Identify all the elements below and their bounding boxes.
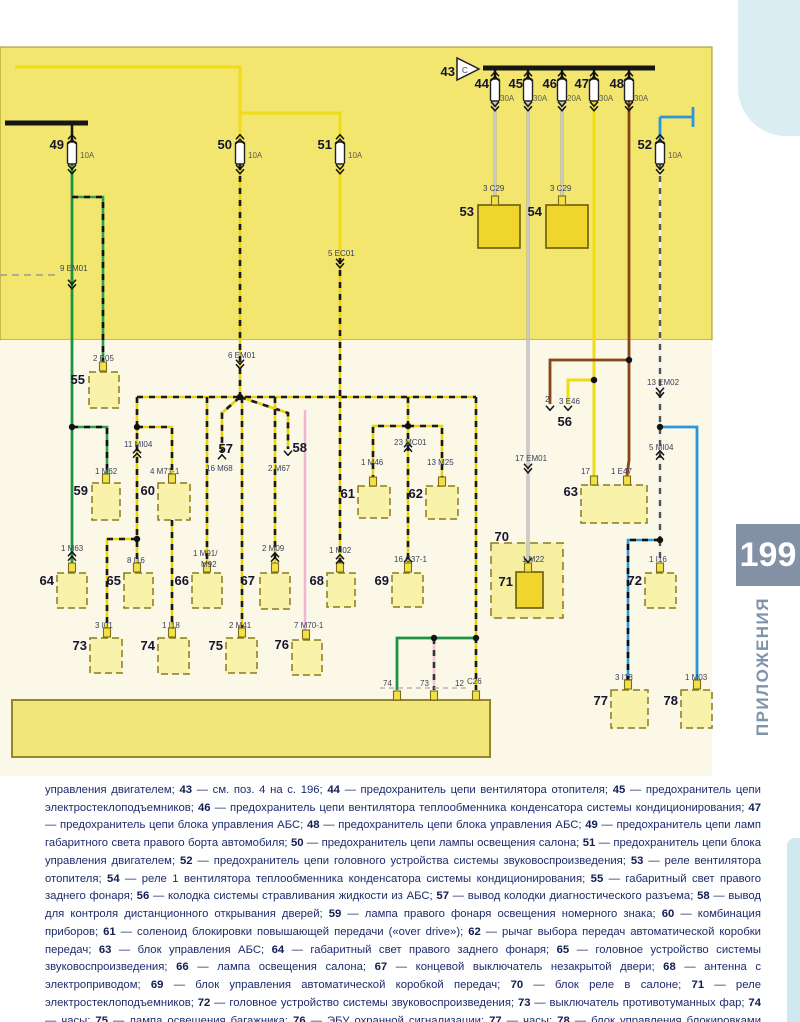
legend-item-number: 70 — [511, 979, 524, 991]
junction-node — [657, 424, 663, 430]
connector-label: 2 M09 — [262, 544, 285, 553]
part-number-label: 59 — [74, 483, 88, 498]
connector-label: 13 EM02 — [647, 378, 680, 387]
connector-label: 1 M03 — [685, 673, 708, 682]
legend-item-number: 78 — [557, 1015, 570, 1022]
fuse-symbol — [558, 79, 567, 101]
part-number-label: 43 — [441, 64, 455, 79]
connector-label: 17 — [581, 467, 590, 476]
component-box-54 — [546, 205, 588, 248]
legend-item-number: 76 — [293, 1015, 306, 1022]
fuse-rating-label: 10A — [668, 151, 683, 160]
legend-item-number: 63 — [99, 944, 112, 956]
connector-label: 2 — [545, 395, 550, 404]
connector-pin — [394, 691, 401, 700]
junction-node — [237, 394, 243, 400]
connector-pin — [431, 691, 438, 700]
component-box-77 — [611, 690, 648, 728]
section-title-vertical: ПРИЛОЖЕНИЯ — [753, 597, 773, 736]
connector-label: 2 M67 — [268, 464, 291, 473]
connector-label: 3 I01 — [95, 621, 113, 630]
junction-node — [69, 424, 75, 430]
legend-item-number: 46 — [198, 802, 211, 814]
legend-item-number: 54 — [107, 873, 120, 885]
legend-item-number: 62 — [468, 926, 481, 938]
connector-label: 5 EC01 — [328, 249, 355, 258]
fuse-symbol — [336, 142, 345, 164]
connector-label: 1 I16 — [649, 555, 667, 564]
component-box-69 — [392, 573, 423, 607]
legend-item-number: 60 — [662, 908, 675, 920]
legend-item-number: 61 — [103, 926, 116, 938]
part-number-label: 53 — [460, 204, 474, 219]
connector-label: 9 EM01 — [60, 264, 88, 273]
component-box-60 — [158, 483, 190, 520]
component-box-74 — [158, 638, 189, 674]
fuse-symbol — [656, 142, 665, 164]
connector-pin — [69, 563, 76, 572]
connector-pin — [492, 196, 499, 205]
connector-label: 13 M25 — [427, 458, 454, 467]
fuse-symbol — [68, 142, 77, 164]
fuse-symbol — [625, 79, 634, 101]
junction-node — [591, 377, 597, 383]
component-box-78 — [681, 690, 712, 728]
legend-item-number: 56 — [137, 890, 150, 902]
part-number-label: 65 — [107, 573, 121, 588]
component-box-53 — [478, 205, 520, 248]
fuse-rating-label: 20A — [567, 94, 582, 103]
component-box-76 — [292, 640, 322, 675]
part-number-label: 73 — [73, 638, 87, 653]
connector-pin — [100, 362, 107, 371]
connector-label: 3 E46 — [559, 397, 580, 406]
part-number-label: 71 — [499, 574, 513, 589]
connector-pin — [559, 196, 566, 205]
fuse-rating-label: 10A — [248, 151, 263, 160]
connector-label: 16 C37-1 — [394, 555, 427, 564]
junction-node — [431, 635, 437, 641]
connector-label: 5 MI04 — [649, 443, 674, 452]
part-number-label: 62 — [409, 486, 423, 501]
legend-item-number: 45 — [613, 784, 626, 796]
part-number-label: 69 — [375, 573, 389, 588]
component-box-63 — [581, 485, 647, 523]
power-source-letter: C — [462, 66, 468, 75]
legend-item-number: 73 — [518, 997, 531, 1009]
part-number-label: 45 — [509, 76, 523, 91]
connector-label: 1 I18 — [162, 621, 180, 630]
part-number-label: 67 — [241, 573, 255, 588]
fuse-rating-label: 10A — [80, 151, 95, 160]
legend-item-number: 77 — [489, 1015, 502, 1022]
connector-label: M92 — [201, 560, 217, 569]
legend-item-number: 55 — [591, 873, 604, 885]
part-number-label: 78 — [664, 693, 678, 708]
junction-node — [626, 357, 632, 363]
part-number-label: 48 — [610, 76, 624, 91]
connector-label: C26 — [467, 677, 482, 686]
connector-label: 8 I16 — [127, 556, 145, 565]
legend-item-number: 72 — [198, 997, 211, 1009]
connector-label: 16 M68 — [206, 464, 233, 473]
connector-label: 1 E47 — [611, 467, 632, 476]
part-number-label: 64 — [40, 573, 55, 588]
legend-item-number: 53 — [631, 855, 644, 867]
connector-pin — [473, 691, 480, 700]
component-box-75 — [226, 638, 257, 673]
fuse-rating-label: 30A — [533, 94, 548, 103]
part-number-label: 50 — [218, 137, 232, 152]
fuse-rating-label: 30A — [500, 94, 515, 103]
connector-pin — [370, 477, 377, 486]
connector-pin — [337, 563, 344, 572]
fuse-symbol — [236, 142, 245, 164]
connector-label: 1 M22 — [522, 555, 545, 564]
connector-label: 2 E05 — [93, 354, 114, 363]
legend-item-number: 71 — [692, 979, 705, 991]
page-edge-decoration — [787, 838, 800, 1022]
fuse-rating-label: 10A — [348, 151, 363, 160]
connector-label: 1 M46 — [361, 458, 384, 467]
connector-label: 11 MI04 — [124, 440, 153, 449]
legend-item-number: 44 — [327, 784, 340, 796]
junction-node — [657, 537, 663, 543]
legend-item-number: 50 — [291, 837, 304, 849]
legend-item-number: 47 — [748, 802, 761, 814]
legend-item-number: 43 — [179, 784, 192, 796]
part-number-label: 49 — [50, 137, 64, 152]
connector-pin — [303, 630, 310, 639]
legend-item-number: 67 — [375, 961, 388, 973]
legend-item-number: 66 — [176, 961, 189, 973]
part-number-label: 46 — [543, 76, 557, 91]
connector-pin — [624, 476, 631, 485]
part-number-label: 54 — [528, 204, 543, 219]
legend-item-number: 65 — [557, 944, 570, 956]
connector-label: 17 EM01 — [515, 454, 548, 463]
legend-item-number: 59 — [329, 908, 342, 920]
connector-label: 1 M63 — [61, 544, 84, 553]
legend-item-number: 51 — [583, 837, 596, 849]
fuse-symbol — [590, 79, 599, 101]
part-number-label: 60 — [141, 483, 155, 498]
part-number-label: 77 — [594, 693, 608, 708]
junction-node — [134, 536, 140, 542]
junction-node — [473, 635, 479, 641]
component-box-73 — [90, 638, 122, 673]
connector-label: 1 M62 — [95, 467, 118, 476]
connector-pin — [405, 563, 412, 572]
legend-item-number: 49 — [585, 819, 598, 831]
connector-label: 12 — [455, 679, 464, 688]
connector-label: 3 C29 — [550, 184, 572, 193]
connector-label: 7 M70-1 — [294, 621, 324, 630]
fuse-symbol — [524, 79, 533, 101]
wiring-diagram: C434445464748495051525354555657585960616… — [0, 0, 800, 780]
component-box-55 — [89, 372, 119, 408]
part-number-label: 52 — [638, 137, 652, 152]
connector-label: 3 C29 — [483, 184, 505, 193]
scanned-manual-page: C434445464748495051525354555657585960616… — [0, 0, 800, 1022]
connector-pin — [657, 563, 664, 572]
part-number-label: 44 — [475, 76, 490, 91]
component-box-71 — [516, 572, 543, 608]
part-number-label: 75 — [209, 638, 223, 653]
legend-item-number: 74 — [748, 997, 761, 1009]
connector-label: 74 — [383, 679, 392, 688]
connector-label: 1 M02 — [329, 546, 352, 555]
connector-pin — [439, 477, 446, 486]
junction-node — [405, 423, 411, 429]
part-number-label: 72 — [628, 573, 642, 588]
connector-label: 4 M71-1 — [150, 467, 180, 476]
page-number-badge: 199 — [736, 524, 800, 586]
part-number-label: 57 — [219, 441, 233, 456]
connector-label: 3 I18 — [615, 673, 633, 682]
region-power-section — [0, 47, 712, 340]
legend-item-number: 52 — [180, 855, 193, 867]
legend-item-number: 68 — [663, 961, 676, 973]
part-number-label: 51 — [318, 137, 332, 152]
page-number: 199 — [740, 536, 797, 575]
component-box-72 — [645, 573, 676, 608]
part-number-label: 47 — [575, 76, 589, 91]
fuse-rating-label: 30A — [599, 94, 614, 103]
component-box-66 — [192, 573, 222, 608]
component-box-61 — [358, 486, 390, 518]
legend-item-number: 64 — [272, 944, 285, 956]
component-box-relay-bar — [12, 700, 490, 757]
component-box-65 — [124, 573, 153, 608]
part-number-label: 61 — [341, 486, 355, 501]
connector-label: 73 — [420, 679, 429, 688]
connector-label: 2 M41 — [229, 621, 252, 630]
legend-text: управления двигателем; 43 — см. поз. 4 н… — [45, 782, 761, 1022]
legend-item-number: 75 — [95, 1015, 108, 1022]
connector-label: 6 EM01 — [228, 351, 256, 360]
component-box-62 — [426, 486, 458, 519]
legend-item-number: 69 — [151, 979, 164, 991]
junction-node — [134, 424, 140, 430]
component-box-64 — [57, 573, 87, 608]
connector-pin — [591, 476, 598, 485]
fuse-symbol — [491, 79, 500, 101]
component-box-68 — [327, 573, 355, 607]
component-box-67 — [260, 573, 290, 609]
part-number-label: 76 — [275, 637, 289, 652]
part-number-label: 66 — [175, 573, 189, 588]
part-number-label: 56 — [558, 414, 572, 429]
connector-pin — [272, 563, 279, 572]
fuse-rating-label: 30A — [634, 94, 649, 103]
connector-label: 1 M91/ — [193, 549, 218, 558]
part-number-label: 55 — [71, 372, 85, 387]
part-number-label: 68 — [310, 573, 324, 588]
legend-item-number: 48 — [307, 819, 320, 831]
part-number-label: 63 — [564, 484, 578, 499]
part-number-label: 58 — [293, 440, 307, 455]
legend-item-number: 57 — [436, 890, 449, 902]
part-number-label: 74 — [141, 638, 156, 653]
component-box-59 — [92, 483, 120, 520]
connector-label: 23 MC01 — [394, 438, 427, 447]
connector-pin — [525, 563, 532, 572]
legend-item-number: 58 — [697, 890, 710, 902]
part-number-label: 70 — [495, 529, 509, 544]
